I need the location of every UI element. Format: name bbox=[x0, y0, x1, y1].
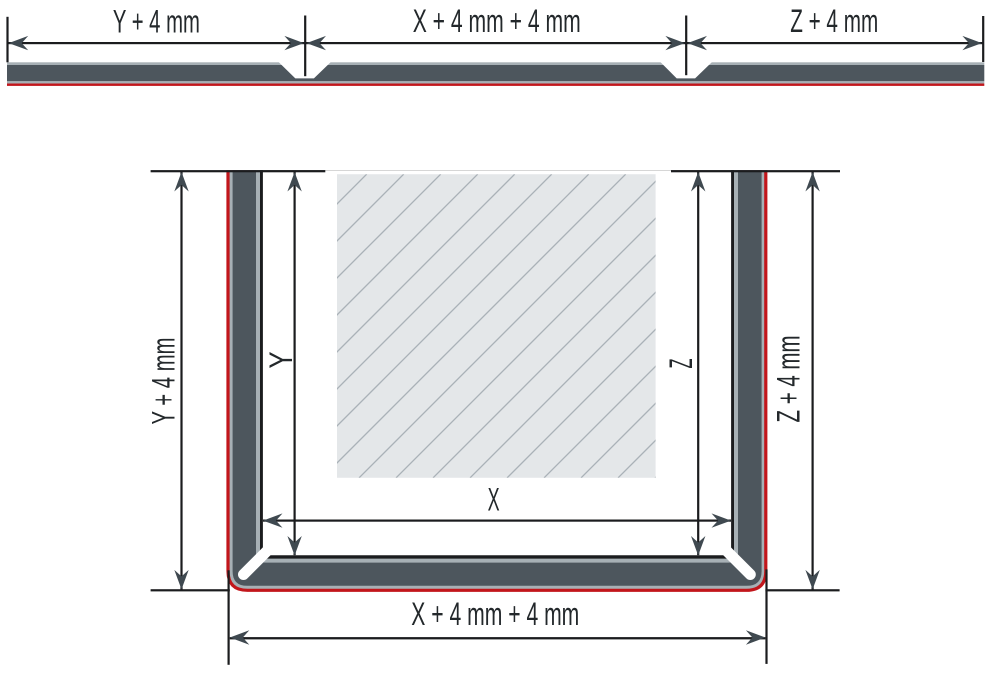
svg-text:Z + 4 mm: Z + 4 mm bbox=[790, 3, 878, 39]
svg-text:X + 4 mm + 4 mm: X + 4 mm + 4 mm bbox=[411, 596, 579, 632]
svg-text:Y + 4 mm: Y + 4 mm bbox=[145, 338, 181, 425]
svg-text:Z + 4 mm: Z + 4 mm bbox=[771, 336, 807, 423]
svg-text:Z: Z bbox=[663, 359, 699, 369]
svg-text:Y + 4 mm: Y + 4 mm bbox=[113, 4, 200, 40]
svg-text:Y: Y bbox=[263, 352, 299, 369]
svg-text:X + 4 mm + 4 mm: X + 4 mm + 4 mm bbox=[413, 3, 581, 39]
svg-text:X: X bbox=[488, 482, 500, 518]
